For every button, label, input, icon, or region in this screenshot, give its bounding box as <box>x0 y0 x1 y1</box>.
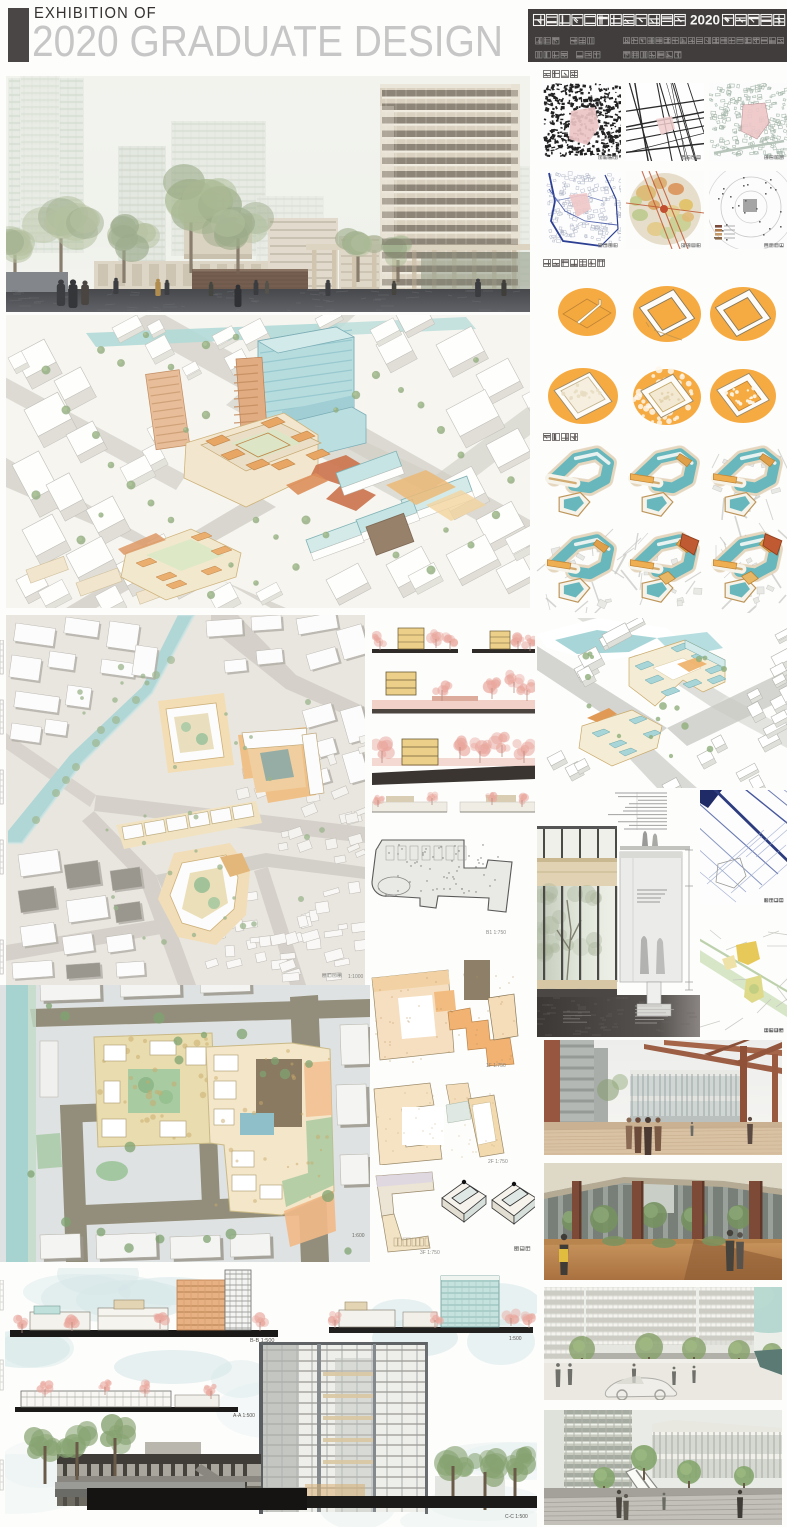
svg-text:1:1000: 1:1000 <box>348 974 364 980</box>
svg-text:3F 1:750: 3F 1:750 <box>420 1250 440 1256</box>
svg-text:B1 1:750: B1 1:750 <box>486 930 506 936</box>
svg-text:2F 1:750: 2F 1:750 <box>488 1159 508 1165</box>
svg-text:1:600: 1:600 <box>352 1233 365 1239</box>
svg-text:1:500: 1:500 <box>509 1336 522 1342</box>
svg-text:C-C 1:500: C-C 1:500 <box>505 1514 528 1520</box>
svg-text:1F 1:750: 1F 1:750 <box>486 1063 506 1069</box>
svg-text:A-A 1:500: A-A 1:500 <box>233 1413 255 1419</box>
svg-text:2020: 2020 <box>690 13 720 28</box>
